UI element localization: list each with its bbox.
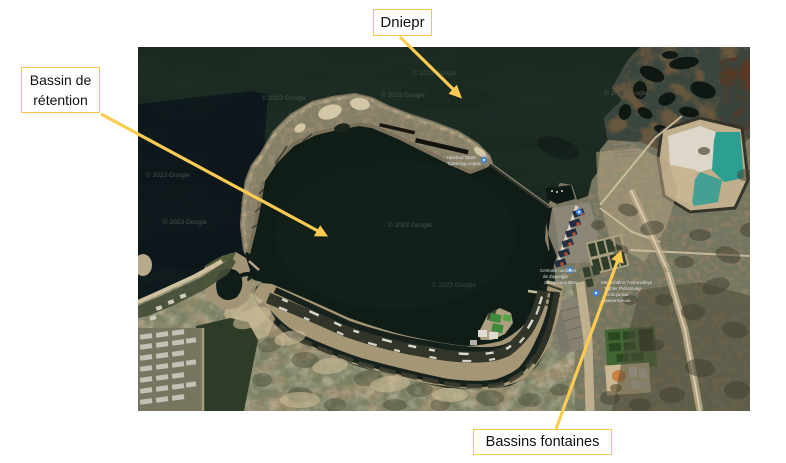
svg-text:© 2023 Google: © 2023 Google bbox=[656, 266, 700, 274]
svg-text:© 2023 Google: © 2023 Google bbox=[388, 221, 432, 229]
svg-text:Centrale nucléaire: Centrale nucléaire bbox=[540, 268, 577, 273]
svg-text:© 2023 Google: © 2023 Google bbox=[163, 218, 207, 226]
svg-text:© 2023 Google: © 2023 Google bbox=[262, 94, 306, 102]
svg-text:© 2023 Google: © 2023 Google bbox=[432, 281, 476, 289]
svg-text:ремонтально: ремонтально bbox=[603, 298, 631, 303]
svg-text:Hlavbud Tares: Hlavbud Tares bbox=[447, 155, 476, 160]
svg-text:© 2023 Google: © 2023 Google bbox=[146, 171, 190, 179]
svg-text:© 2023 Google: © 2023 Google bbox=[381, 91, 425, 99]
svg-text:de Zaporijjia: de Zaporijjia bbox=[543, 274, 568, 279]
svg-text:Трансбуд-сервіс: Трансбуд-сервіс bbox=[447, 161, 482, 166]
svg-text:Запорізька АЕС: Запорізька АЕС bbox=[544, 280, 578, 285]
svg-text:Спеціалізо: Спеціалізо bbox=[606, 292, 629, 297]
svg-text:© 2023 Google: © 2023 Google bbox=[604, 89, 648, 97]
